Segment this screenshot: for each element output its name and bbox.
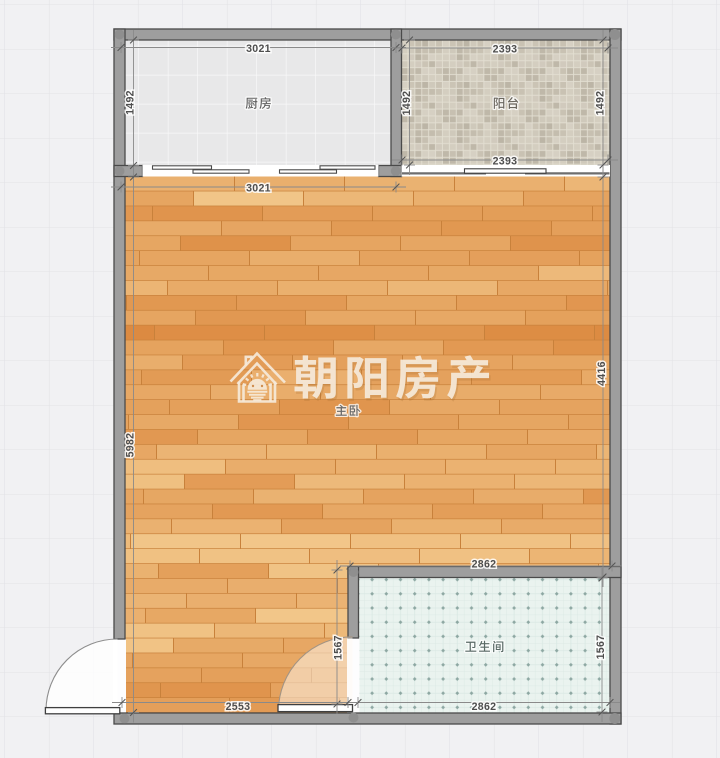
svg-text:1492: 1492 [594, 91, 606, 116]
svg-text:3021: 3021 [246, 43, 271, 55]
svg-text:2862: 2862 [472, 701, 497, 713]
svg-text:2862: 2862 [472, 559, 497, 571]
svg-text:5982: 5982 [124, 433, 136, 458]
svg-text:3021: 3021 [246, 182, 271, 194]
svg-text:1567: 1567 [595, 635, 607, 660]
svg-text:1492: 1492 [124, 90, 136, 115]
svg-text:4416: 4416 [596, 361, 608, 386]
svg-text:2393: 2393 [493, 155, 518, 167]
svg-text:1492: 1492 [401, 91, 413, 116]
svg-text:2553: 2553 [226, 701, 251, 713]
svg-text:2393: 2393 [493, 43, 518, 55]
svg-text:1567: 1567 [332, 635, 344, 660]
